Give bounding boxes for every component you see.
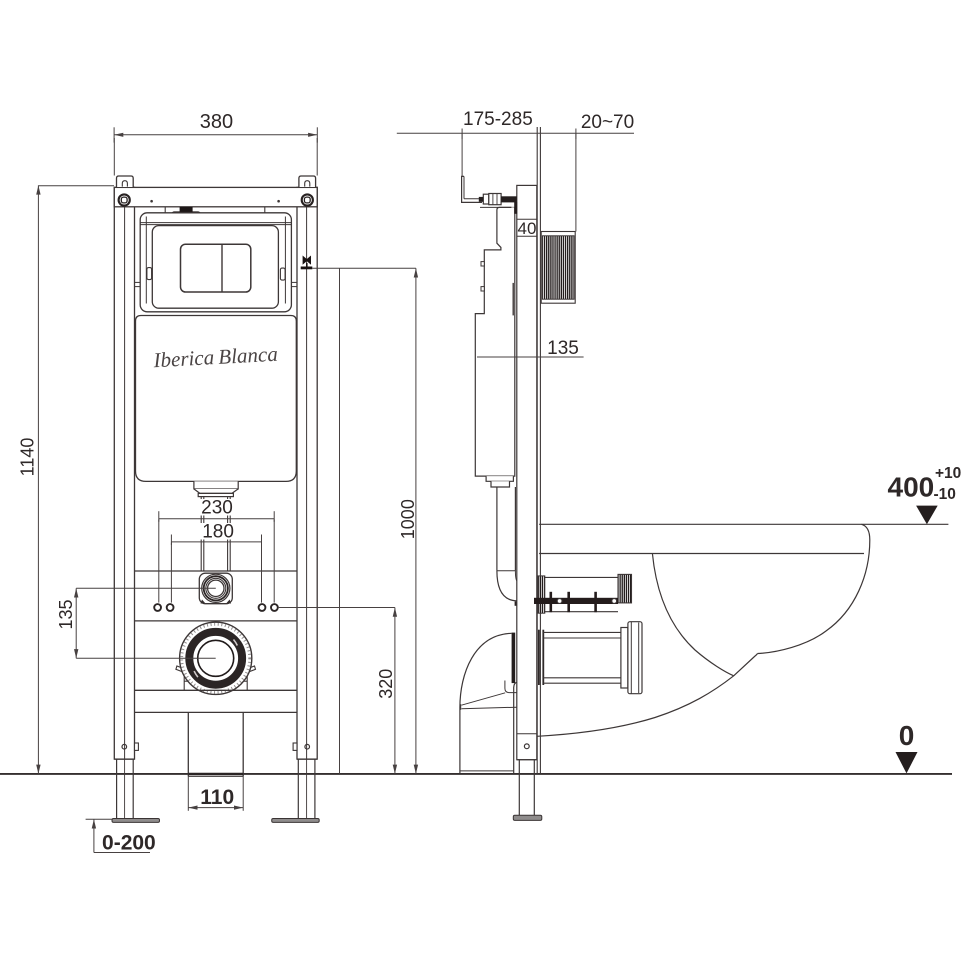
svg-text:135: 135: [547, 338, 579, 359]
svg-text:20~70: 20~70: [581, 112, 634, 133]
svg-text:180: 180: [202, 521, 234, 542]
svg-text:320: 320: [376, 669, 396, 699]
svg-text:135: 135: [56, 599, 76, 629]
svg-text:110: 110: [200, 786, 234, 809]
svg-text:40: 40: [518, 219, 537, 238]
svg-text:400: 400: [888, 472, 935, 503]
svg-text:0: 0: [899, 720, 915, 751]
svg-text:0-200: 0-200: [102, 832, 156, 855]
svg-text:+10: +10: [935, 465, 961, 482]
svg-text:-10: -10: [934, 486, 956, 503]
svg-text:175-285: 175-285: [463, 109, 533, 130]
svg-text:230: 230: [201, 498, 233, 519]
svg-text:380: 380: [200, 111, 233, 133]
svg-text:1000: 1000: [398, 499, 418, 539]
svg-text:1140: 1140: [18, 438, 38, 477]
